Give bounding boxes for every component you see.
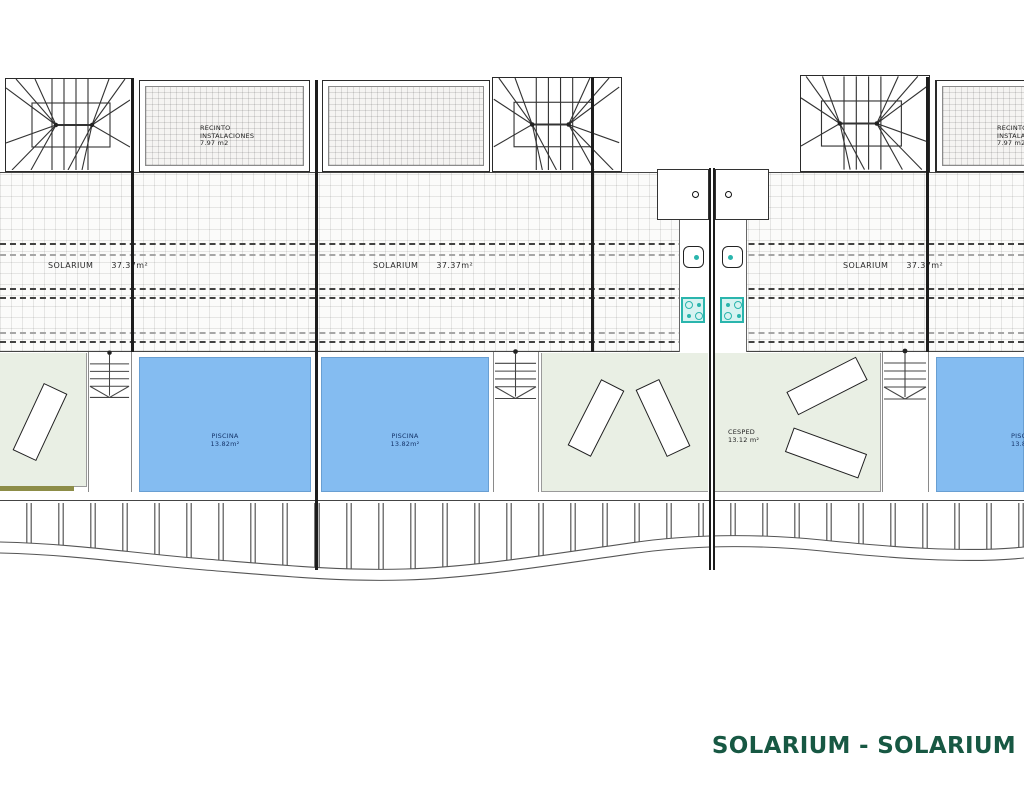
kitchen-counter-right — [715, 169, 769, 220]
burner-icon — [724, 312, 732, 320]
recinto-label-2: RECINTO INSTALACIONES 7.97 m2 — [997, 125, 1024, 148]
pergola-beam-line-4 — [0, 297, 1024, 299]
pool-1-area: 13.82m² — [140, 440, 310, 448]
kitchen-strip-left — [679, 220, 709, 352]
sun-lounger — [568, 379, 625, 457]
burner-icon — [695, 312, 703, 320]
pergola-beam-line-2 — [0, 254, 1024, 256]
staircase-block-2 — [492, 77, 622, 172]
drain-icon — [728, 255, 733, 260]
lawn-label: CESPED 13.12 m² — [728, 429, 759, 444]
burner-icon — [697, 303, 701, 307]
pool-1-name: PISCINA — [140, 432, 310, 440]
pergola-beam-line-5 — [0, 332, 1024, 334]
pool-2-name: PISCINA — [322, 432, 488, 440]
terrace-2 — [541, 353, 708, 492]
recinto-hatch-2 — [328, 86, 484, 166]
sun-lounger — [785, 427, 867, 478]
pool-2-area: 13.82m² — [322, 440, 488, 448]
small-stair-icon — [494, 347, 537, 405]
burner-icon — [734, 301, 742, 309]
terrace-3-lawn: CESPED 13.12 m² — [715, 353, 881, 492]
pool-3-area: 13.82m² — [1011, 440, 1024, 448]
staircase-block-3 — [800, 75, 930, 172]
stairwell-1 — [88, 352, 132, 492]
burner-knob-icon — [692, 191, 699, 198]
recinto-label-1-line3: 7.97 m2 — [200, 140, 254, 148]
solarium-label-1-name: SOLARIUM — [48, 261, 93, 270]
solarium-label-2-area: 37.37m² — [436, 261, 473, 270]
recinto-instalaciones-room-3: RECINTO INSTALACIONES 7.97 m2 — [935, 80, 1024, 172]
burner-icon — [685, 301, 693, 309]
wall-vertical-1 — [131, 78, 134, 352]
burner-icon — [737, 314, 741, 318]
drain-icon — [694, 255, 699, 260]
small-stair-icon — [883, 347, 927, 405]
small-stair-icon — [89, 347, 130, 405]
wall-vertical-3 — [591, 77, 594, 352]
burner-icon — [687, 314, 691, 318]
recinto-label-2-line3: 7.97 m2 — [997, 140, 1024, 148]
wall-vertical-4 — [926, 77, 929, 352]
break-line-wave — [0, 528, 1024, 600]
burner-knob-icon — [725, 191, 732, 198]
pool-3-label: PISCINA 13.82m² — [1011, 432, 1024, 448]
stove-left — [681, 297, 705, 323]
page-title: SOLARIUM - SOLARIUM — [712, 733, 1016, 759]
stairwell-2 — [493, 352, 539, 492]
winder-stair-icon — [493, 78, 620, 170]
winder-stair-icon — [6, 79, 130, 170]
sun-lounger — [13, 383, 68, 461]
pool-2-label: PISCINA 13.82m² — [322, 432, 488, 448]
pergola-beam-line-6 — [0, 341, 1024, 343]
solarium-label-2: SOLARIUM 37.37m² — [373, 261, 473, 270]
recinto-instalaciones-room-2 — [322, 80, 490, 172]
pool-2: PISCINA 13.82m² — [321, 357, 489, 492]
recinto-instalaciones-room-1: RECINTO INSTALACIONES 7.97 m2 — [139, 80, 310, 172]
pergola-beam-line-3 — [0, 288, 1024, 290]
terrace-edge-strip — [0, 486, 74, 491]
staircase-block-1 — [5, 78, 132, 172]
floor-plan: RECINTO INSTALACIONES 7.97 m2 — [0, 0, 1024, 800]
lawn-area: 13.12 m² — [728, 437, 759, 445]
recinto-label-1: RECINTO INSTALACIONES 7.97 m2 — [200, 125, 254, 148]
sun-lounger — [786, 357, 867, 416]
terrace-1 — [0, 353, 87, 487]
pergola-beam-line-1 — [0, 243, 1024, 245]
pool-3-name: PISCINA — [1011, 432, 1024, 440]
sun-lounger — [636, 379, 691, 457]
solarium-label-1-area: 37.37m² — [111, 261, 148, 270]
sink-left — [683, 246, 704, 268]
pool-1-label: PISCINA 13.82m² — [140, 432, 310, 448]
kitchen-counter-left — [657, 169, 709, 220]
pool-3: PISCINA 13.82m² — [936, 357, 1024, 492]
sink-right — [722, 246, 743, 268]
solarium-label-3-name: SOLARIUM — [843, 261, 888, 270]
burner-icon — [726, 303, 730, 307]
pool-1: PISCINA 13.82m² — [139, 357, 311, 492]
wall-vertical-2 — [315, 80, 318, 570]
winder-stair-icon — [801, 76, 928, 170]
stove-right — [720, 297, 744, 323]
solarium-label-2-name: SOLARIUM — [373, 261, 418, 270]
solarium-label-3-area: 37.37m² — [906, 261, 943, 270]
stairwell-3 — [882, 352, 929, 492]
kitchen-strip-right — [715, 220, 747, 352]
